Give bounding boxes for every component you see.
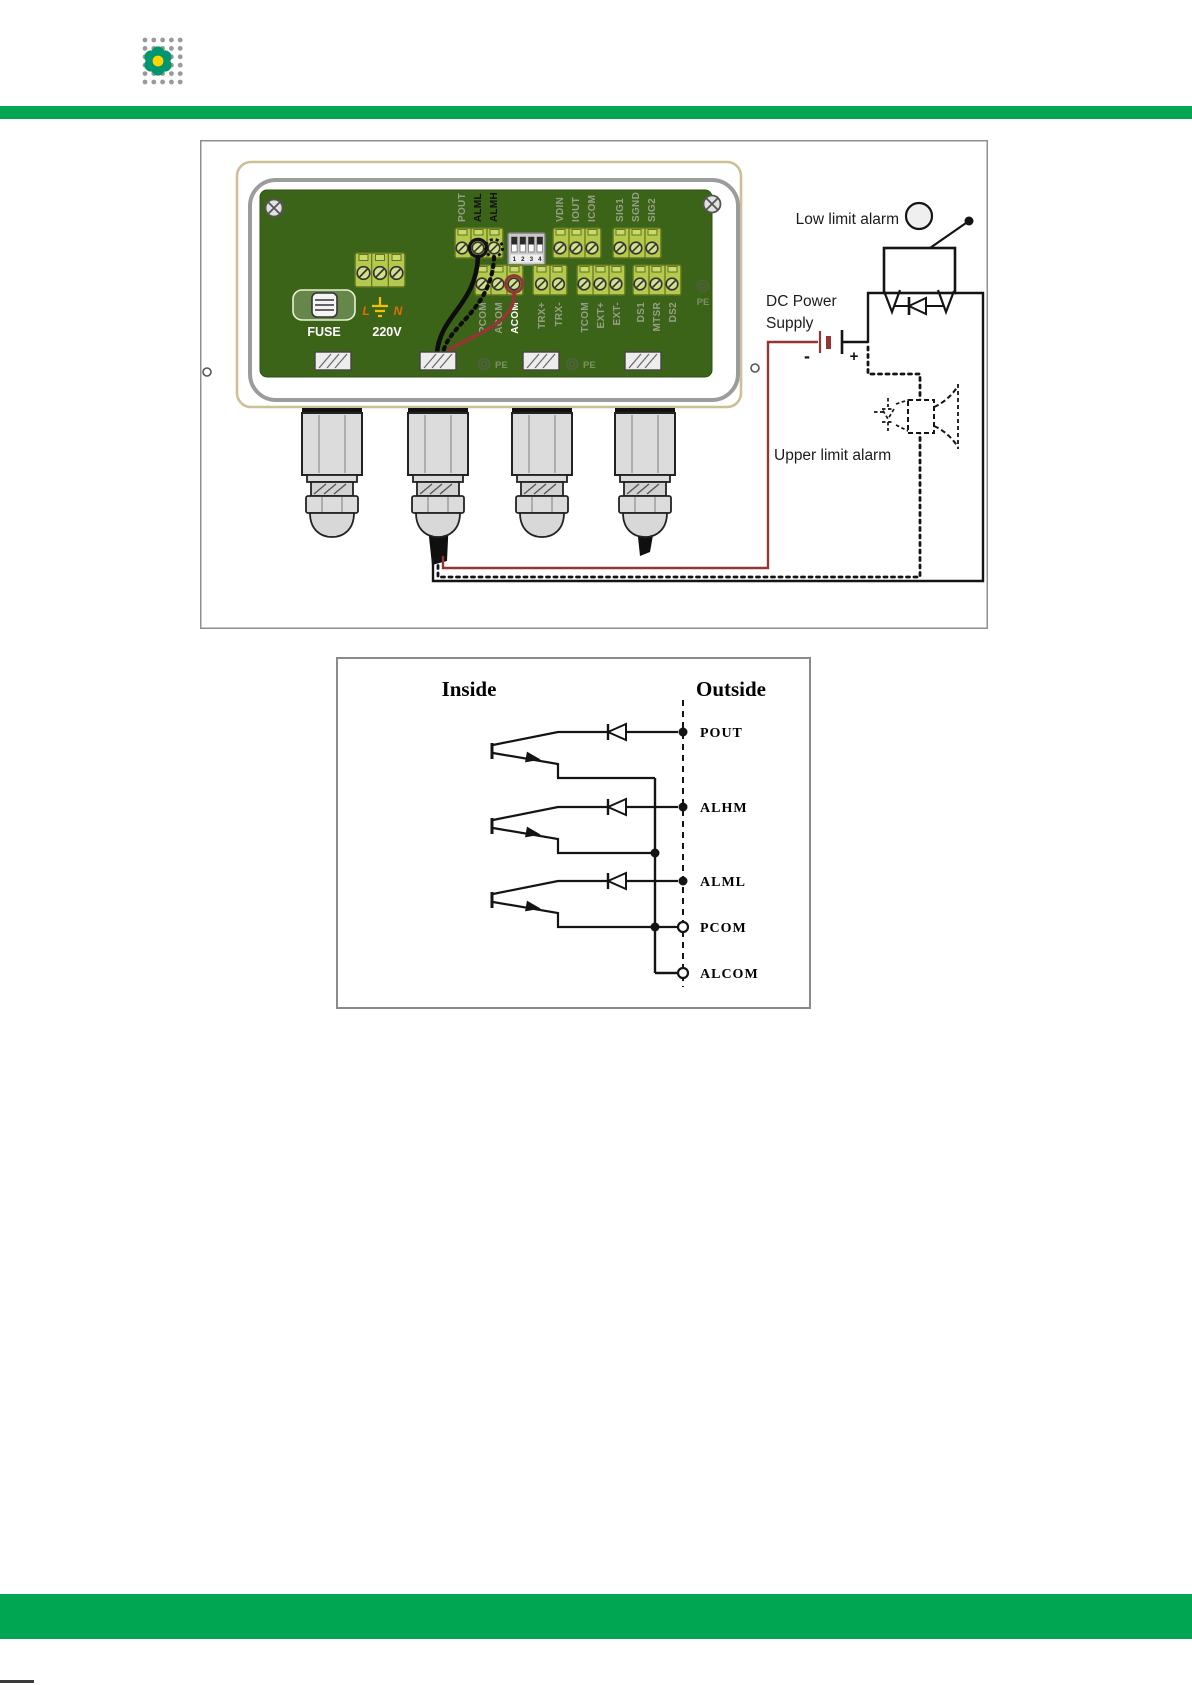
- neutral-label: N: [394, 304, 403, 318]
- terminal-block: [475, 265, 523, 295]
- footer-bar: [0, 1594, 1192, 1639]
- fuse-label: FUSE: [307, 325, 340, 339]
- pin-label: ALML: [700, 875, 746, 890]
- mounting-hole-icon: [751, 364, 759, 372]
- mounting-hole-icon: [203, 368, 211, 376]
- terminal-label: ALML: [473, 193, 484, 222]
- minus-label: -: [804, 346, 810, 366]
- terminal-block: [533, 265, 567, 295]
- header-rule-bar: [0, 106, 1192, 119]
- terminal-label: SIG2: [647, 198, 658, 222]
- dc-power-label-1: DC Power: [766, 293, 837, 310]
- inside-title: Inside: [442, 677, 497, 701]
- screw-icon: [704, 196, 721, 213]
- screw-icon: [266, 200, 283, 217]
- figure-border: [337, 658, 810, 1008]
- terminal-label: DS1: [636, 302, 647, 322]
- terminal-block: [355, 253, 405, 287]
- pin-dot: [679, 803, 688, 812]
- terminal-label: SGND: [631, 192, 642, 222]
- terminal-block: [613, 228, 661, 258]
- figure-wiring-diagram: FUSE 220V L N POU: [200, 140, 990, 629]
- dip-switch: 1 2 3 4: [508, 233, 545, 265]
- svg-text:4: 4: [538, 256, 542, 263]
- pin-open-circle: [678, 968, 688, 978]
- terminal-label: IOUT: [571, 197, 582, 222]
- pe-label: PE: [697, 297, 710, 308]
- pin-label: ALCOM: [700, 967, 759, 982]
- page-edge-mark: [0, 1680, 34, 1683]
- pin-label: POUT: [700, 726, 743, 741]
- terminal-label: DS2: [668, 302, 679, 322]
- svg-text:2: 2: [521, 256, 525, 263]
- low-limit-label: Low limit alarm: [796, 211, 899, 228]
- junction-dot: [651, 923, 660, 932]
- dc-power-label-2: Supply: [766, 315, 814, 332]
- pin-dot: [679, 728, 688, 737]
- voltage-label: 220V: [372, 325, 402, 339]
- line-label: L: [362, 304, 369, 318]
- terminal-label: TRX-: [554, 302, 565, 327]
- terminal-label: TRX+: [537, 302, 548, 329]
- terminal-block: [455, 228, 503, 258]
- terminal-label: TCOM: [580, 302, 591, 333]
- plus-label: +: [850, 348, 859, 365]
- terminal-label: ICOM: [587, 195, 598, 222]
- terminal-block: [633, 265, 681, 295]
- figure-output-schematic: Inside Outside POUT AL: [310, 629, 830, 1024]
- terminal-label: SIG1: [615, 198, 626, 222]
- upper-limit-label: Upper limit alarm: [774, 447, 891, 464]
- cable-gland-icon: [512, 408, 572, 537]
- terminal-block: [553, 228, 601, 258]
- pe-label: PE: [495, 360, 508, 371]
- pin-open-circle: [678, 922, 688, 932]
- terminal-block: [577, 265, 625, 295]
- cable-gland-icon: [302, 408, 362, 537]
- svg-text:1: 1: [513, 256, 517, 263]
- terminal-label: VDIN: [555, 197, 566, 222]
- fuse-icon: [293, 290, 355, 320]
- outside-title: Outside: [696, 677, 766, 701]
- cable-gland-icon: [408, 408, 468, 537]
- lamp-icon: [906, 203, 932, 229]
- terminal-label: POUT: [457, 193, 468, 222]
- pe-label: PE: [583, 360, 596, 371]
- terminal-label: ALMH: [489, 192, 500, 222]
- pin-label: PCOM: [700, 921, 747, 936]
- junction-dot: [651, 849, 660, 858]
- terminal-label: EXT-: [612, 302, 623, 325]
- cable-gland-icon: [615, 408, 675, 537]
- pin-dot: [679, 877, 688, 886]
- manual-page: FUSE 220V L N POU: [0, 0, 1192, 1685]
- pin-label: ALHM: [700, 801, 748, 816]
- flower-icon: [144, 46, 171, 75]
- terminal-label: EXT+: [596, 302, 607, 329]
- flower-logo: [132, 30, 192, 92]
- svg-text:3: 3: [530, 256, 534, 263]
- terminal-label: MTSR: [652, 302, 663, 332]
